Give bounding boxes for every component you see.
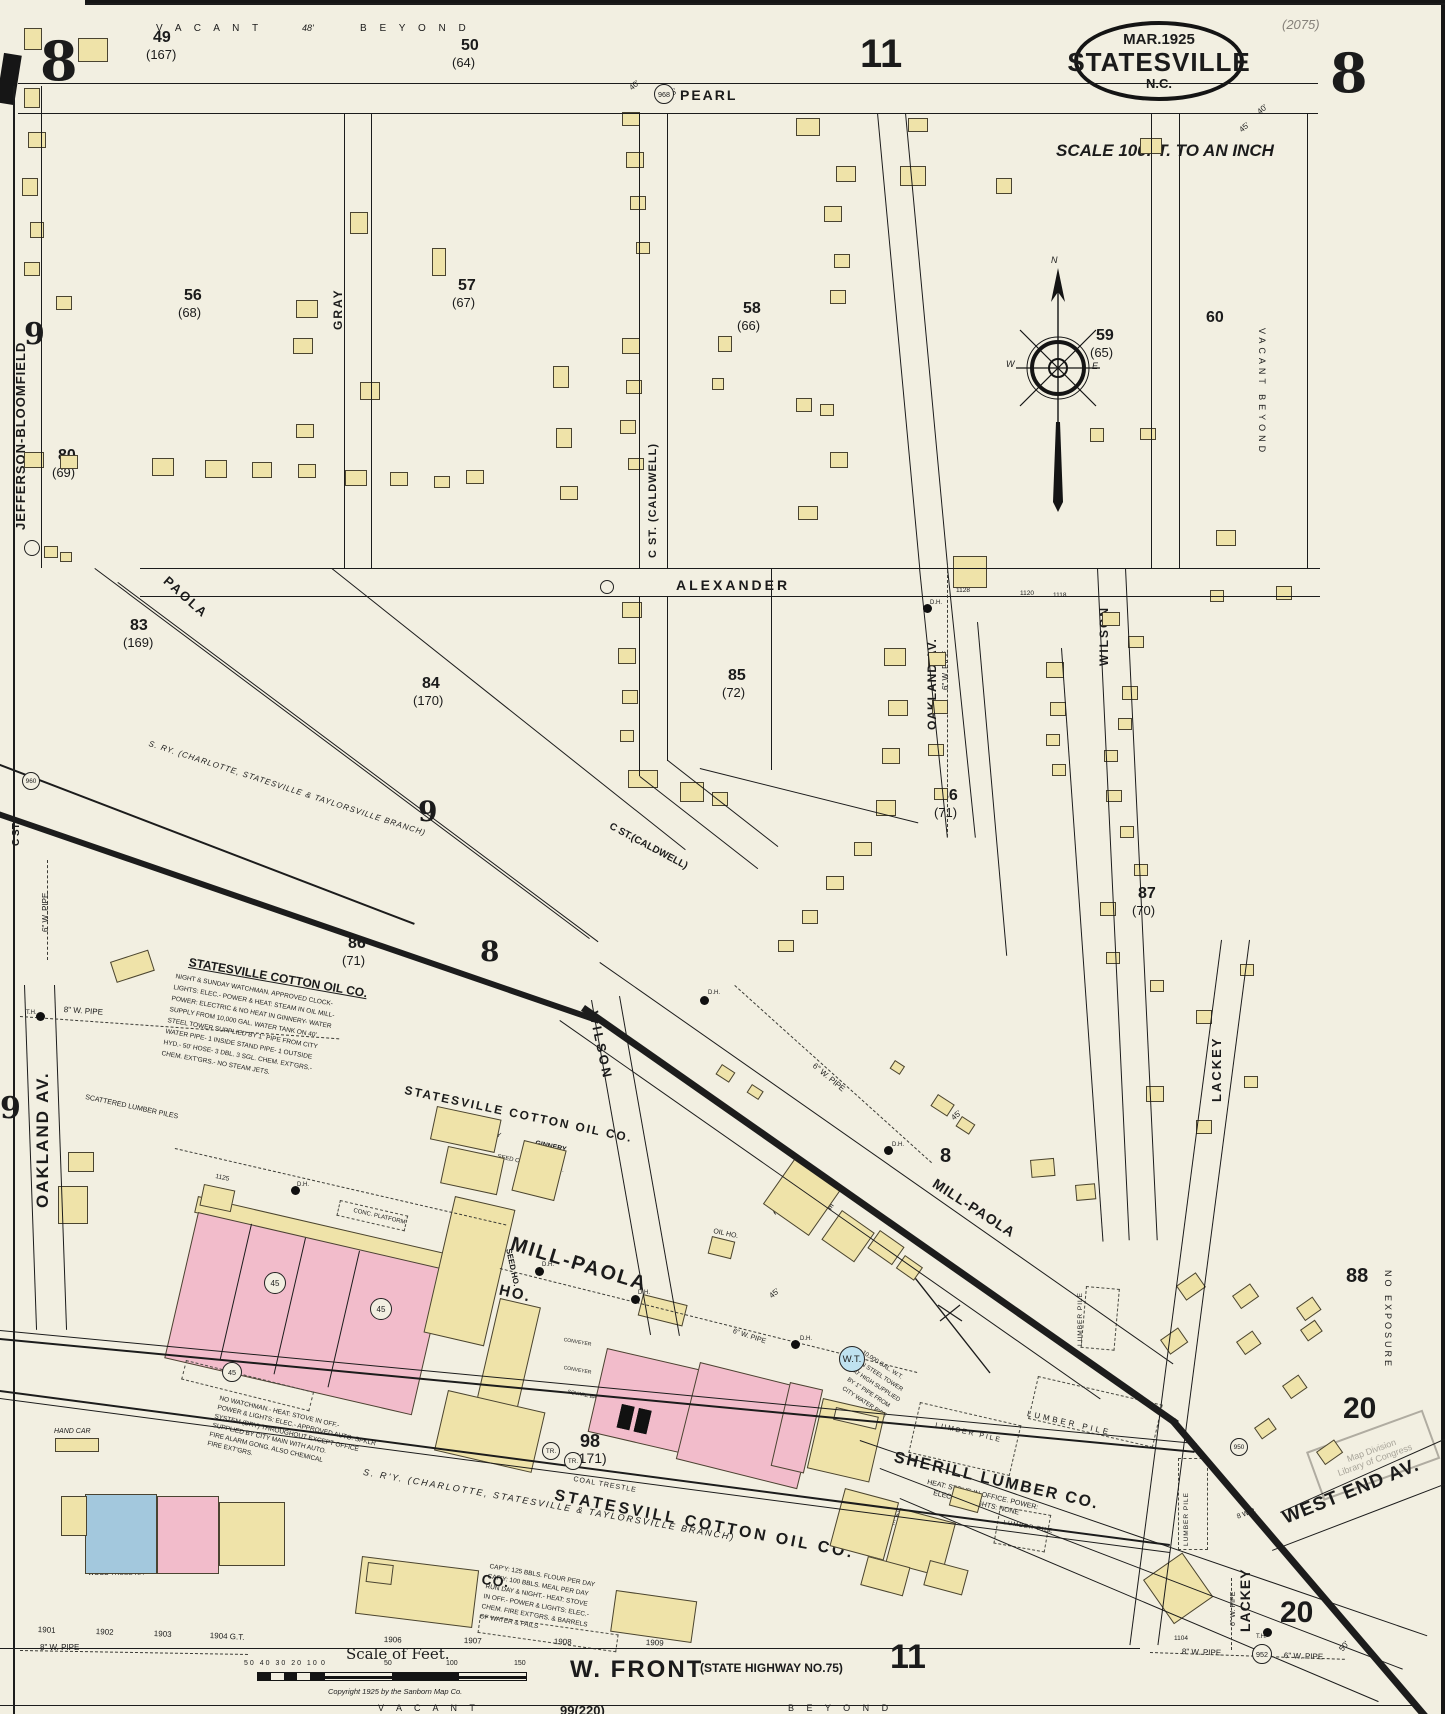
map-title-oval: MAR.1925 STATESVILLE N.C. [1074,21,1244,101]
vacant-beyond-right: VACANT BEYOND [1257,328,1266,456]
building-footprint [296,300,318,318]
scale-ticks-left: 50 40 30 20 10 [244,1660,319,1667]
water-pipe-line [20,1650,248,1655]
building-footprint [715,1064,735,1083]
hydrant-dot [791,1340,800,1349]
compass-n: N [1051,256,1058,265]
block-50p: (64) [452,56,475,69]
water-pipe-line [947,565,948,837]
building-footprint [1300,1320,1323,1342]
lumber-pile-outline [336,1200,408,1231]
ginnery [511,1140,566,1201]
fertilizers-bldg [610,1590,697,1643]
hydrant-dot [36,1012,45,1021]
building-footprint [712,792,728,806]
building-footprint [890,1060,906,1075]
hydrant-dot [291,1186,300,1195]
building-footprint [778,940,794,952]
dim-48: 48' [302,24,314,33]
hydrant-dot [923,604,932,613]
hydrant-marker: 45 [222,1362,242,1382]
block-86bp: (71) [342,954,365,967]
building-footprint [747,1084,764,1100]
dim-40: 40' [1256,103,1269,116]
rr-name-upper: S. RY. (CHARLOTTE, STATESVILLE & TAYLORS… [148,740,427,838]
no-exposure-label: NO EXPOSURE [1383,1270,1392,1369]
map-line [371,113,372,568]
house-number: 1128 [956,588,970,595]
building-footprint [1296,1297,1322,1322]
building-footprint [22,178,38,196]
building-footprint [466,470,484,484]
lumber-pile-outline [1178,1458,1208,1550]
dim-45: 45' [1238,121,1251,134]
scale-tick: 0 [321,1660,325,1667]
map-line [344,113,345,568]
house-number: 1907 [464,1637,482,1646]
block-85: 85 [728,668,746,684]
building-footprint [1050,702,1066,716]
hydrant-dot [535,1267,544,1276]
building-footprint [1282,1375,1308,1400]
compass-e: E [1092,362,1098,371]
map-line [18,113,1318,114]
block-50: 50 [461,38,479,54]
house-number: 1901 [38,1626,56,1635]
block-20a: 20 [1343,1394,1376,1424]
block-56: 56 [184,288,202,304]
street-alexander: ALEXANDER [676,578,790,592]
page-ref: (2075) [1282,18,1320,31]
building-footprint [24,28,42,50]
scattered-lumber-label: SCATTERED LUMBER PILES [85,1094,179,1121]
map-line [639,113,640,568]
block-49p: (167) [146,48,176,61]
building-footprint [908,118,928,132]
hydrant-marker: 950 [1230,1438,1248,1456]
street-c-st-caldwell-2: C ST.(CALDWELL) [607,822,689,872]
building-footprint [68,1152,94,1172]
building-footprint [796,398,812,412]
small-bldg [61,1496,87,1536]
scale-bar [257,1672,527,1681]
map-line [977,622,1007,956]
sheet-number-right: 8 [1330,46,1368,100]
building-footprint [1140,428,1156,440]
building-footprint [712,378,724,390]
cotton-oil-big-lower: STATESVILL COTTON OIL CO. [553,1488,856,1562]
street-mill-paola: MILL-PAOLA [508,1234,649,1295]
building-footprint [802,910,818,924]
beyond-label-top: B E Y O N D [360,24,471,34]
map-line [639,596,640,776]
copyright-line: Copyright 1925 by the Sanborn Map Co. [328,1688,462,1696]
map-line [0,808,600,1024]
block-85p: (72) [722,686,745,699]
scale-tick: 100 [446,1660,458,1667]
block-98: 98 [580,1432,600,1450]
conveyer-label: CONVEYER [563,1338,592,1348]
map-line [1307,113,1308,568]
block-84: 84 [422,676,440,692]
building-footprint [798,506,818,520]
compass-rose-icon [1012,262,1104,514]
block-84p: (170) [413,694,443,707]
building-footprint [24,262,40,276]
building-footprint [1030,1158,1055,1178]
scale-note: SCALE 100FT. TO AN INCH [1056,142,1274,159]
building-footprint [620,730,634,742]
dim-45: 45' [768,1287,781,1300]
hand-car-ho [55,1438,99,1452]
dh-label: D.H. [892,1142,904,1148]
map-line [1129,940,1222,1645]
map-line [0,760,415,925]
scan-edge-right [1441,0,1445,1714]
building-footprint [432,248,446,276]
building-footprint [796,118,820,136]
building-footprint [205,460,227,478]
hydrant-marker: 45 [370,1298,392,1320]
lumber-shed [923,1560,968,1595]
oil-ho [708,1236,736,1259]
scale-tick: 50 [384,1660,392,1667]
house-number: 1906 [384,1636,402,1645]
map-line [667,596,668,761]
building-footprint [553,366,569,388]
building-footprint [350,212,368,234]
building-footprint [110,950,155,983]
house-number: 1909 [646,1639,664,1648]
sheet8-rr: 8 [940,1146,951,1166]
block-56p: (68) [178,306,201,319]
building-footprint [1052,764,1066,776]
water-pipe-line [1231,1578,1232,1650]
building-footprint [252,462,272,478]
hydrant-dot [700,996,709,1005]
map-line [117,582,598,942]
building-footprint [24,88,40,108]
map-line [1061,648,1104,1242]
building-footprint [60,455,78,469]
house-number: 1904 G.T. [210,1632,245,1642]
map-line [140,596,1320,597]
house-number: 1104 [1174,1636,1188,1643]
building-footprint [620,420,636,434]
building-footprint [834,254,850,268]
seed-cotton-ware-ho [440,1146,505,1195]
building-footprint [1254,1418,1277,1440]
block-87ap: (70) [1132,904,1155,917]
map-line [140,568,1320,569]
general-store [157,1496,219,1574]
building-footprint [434,476,450,488]
hydrant-marker: 968 [654,84,674,104]
building-footprint [622,690,638,704]
building-footprint [78,38,108,62]
vacant-label-top: V A C A N T [156,24,263,34]
building-footprint [60,552,72,562]
building-footprint [1120,826,1134,838]
block-49: 49 [153,30,171,46]
building-footprint [296,424,314,438]
map-line [1179,113,1180,568]
corner-store [1143,1552,1213,1624]
building-footprint [824,206,842,222]
building-footprint [293,338,313,354]
block-58: 58 [743,301,761,317]
sanborn-map-sheet: MAR.1925 STATESVILLE N.C. Map Division L… [0,0,1445,1714]
building-footprint [1232,1283,1259,1309]
building-footprint [1075,1183,1096,1201]
street-mill-paola-2: MILL-PAOLA [930,1176,1018,1240]
street-w-front: W. FRONT [570,1658,703,1682]
adjacent-sheet-11-top: 11 [860,34,902,74]
map-title-date: MAR.1925 [1123,32,1195,47]
scan-corner-mark [0,53,22,105]
block-57p: (67) [452,296,475,309]
street-oakland-av-2: OAKLAND AV. [34,1071,51,1208]
hydrant-marker [24,540,40,556]
building-footprint [928,744,944,756]
building-footprint [884,648,906,666]
building-footprint [826,876,844,890]
map-line [0,1705,1420,1706]
pipe-label: 6" W. PIPE [811,1062,846,1093]
building-footprint [996,178,1012,194]
sheet8-mid: 8 [480,938,499,966]
building-footprint [390,472,408,486]
scale-bar-title: Scale of Feet. [346,1647,450,1662]
building-footprint [298,464,316,478]
building-footprint [888,700,908,716]
building-footprint [1090,428,1104,442]
building-footprint [1150,980,1164,992]
dh-label: D.H. [708,990,720,996]
block-59: 59 [1096,328,1114,344]
building-footprint [1134,864,1148,876]
building-footprint [1106,952,1120,964]
map-line [905,113,948,568]
building-footprint [622,338,640,354]
hand-car-label: HAND CAR [54,1428,91,1435]
building-footprint [1118,718,1132,730]
block-88: 88 [1346,1266,1368,1286]
building-footprint [560,486,578,500]
street-lackey: LACKEY [1210,1037,1223,1102]
building-footprint [1128,636,1144,648]
block-58p: (66) [737,319,760,332]
house-number: 1902 [96,1628,114,1637]
building-footprint [1160,1327,1188,1354]
building-footprint [44,546,58,558]
water-tower-marker: W.T. [839,1346,865,1372]
building-footprint [1236,1331,1262,1356]
building-footprint [152,458,174,476]
lumber-pile-outline [1081,1286,1120,1351]
block-83p: (169) [123,636,153,649]
hydrant-marker: 45 [264,1272,286,1294]
machine-shop [85,1494,157,1574]
street-w-front-highway: (STATE HIGHWAY NO.75) [700,1662,843,1674]
building-footprint [618,648,636,664]
compass-w: W [1006,360,1015,369]
pipe-label: 6" W. PIPE [42,893,50,932]
map-line [667,113,668,568]
pipe-label: 8" W. PIPE [63,1006,103,1017]
building-footprint [830,290,846,304]
building-footprint [28,132,46,148]
block-59p: (65) [1090,346,1113,359]
building-footprint [1240,964,1254,976]
map-line [13,86,15,1714]
street-jefferson-bloomfield: JEFFERSON-BLOOMFIELD [14,342,27,530]
building-footprint [56,296,72,310]
building-footprint [882,748,900,764]
sunday-school [953,556,987,588]
map-line [700,768,919,823]
building-footprint [830,452,848,468]
sheet-number-left: 8 [40,34,78,88]
street-c-st-caldwell: C ST. (CALDWELL) [648,443,659,558]
grain-crib [366,1562,394,1585]
map-line [54,985,67,1330]
map-line [0,1648,1140,1649]
map-line [41,86,42,568]
building-footprint [626,152,644,168]
building-footprint [1216,530,1236,546]
fertilizers-bldg [219,1502,285,1566]
building-footprint [718,336,732,352]
adjacent-sheet-11-bottom: 11 [890,1640,926,1674]
dim-40: 40' [628,79,641,92]
street-gray: GRAY [332,288,344,330]
hydrant-dot [884,1146,893,1155]
dh-label: D.H. [800,1336,812,1342]
building-footprint [928,652,946,666]
dh-label: D.H. [542,1262,554,1268]
dh-label: D.H. [930,600,942,606]
building-footprint [345,470,367,486]
hydrant-marker: TR. [542,1442,560,1460]
hydrant-marker [600,580,614,594]
block-57: 57 [458,278,476,294]
building-footprint [1196,1120,1212,1134]
hydrant-marker: 960 [22,772,40,790]
map-line [771,568,772,770]
building-footprint [628,458,644,470]
building-footprint [1244,1076,1258,1088]
building-footprint [1276,586,1292,600]
building-footprint [854,842,872,856]
map-line [85,3,1445,5]
building-footprint [820,404,834,416]
building-footprint [1046,734,1060,746]
building-footprint [556,428,572,448]
hydrant-dot [1263,1628,1272,1637]
map-line [1151,113,1152,568]
building-footprint [1102,612,1120,626]
building-footprint [836,166,856,182]
adjacent-sheet-9-low: 9 [0,1094,21,1124]
house-number: 1903 [154,1630,172,1639]
scale-tick: 150 [514,1660,526,1667]
street-lackey-2: LACKEY [1238,1568,1252,1632]
hydrant-marker: TR. [564,1452,582,1470]
street-pearl: PEARL [680,88,737,102]
building-footprint [900,166,926,186]
hydrant-dot [631,1295,640,1304]
house-number: 1125 [215,1174,230,1183]
block-83: 83 [130,618,148,634]
conveyer-label: CONVEYER [563,1366,592,1376]
block-60: 60 [1206,310,1224,326]
map-title-city: STATESVILLE [1067,49,1250,75]
hydrant-marker: 952 [1252,1644,1272,1664]
water-pipe-line [47,860,48,960]
